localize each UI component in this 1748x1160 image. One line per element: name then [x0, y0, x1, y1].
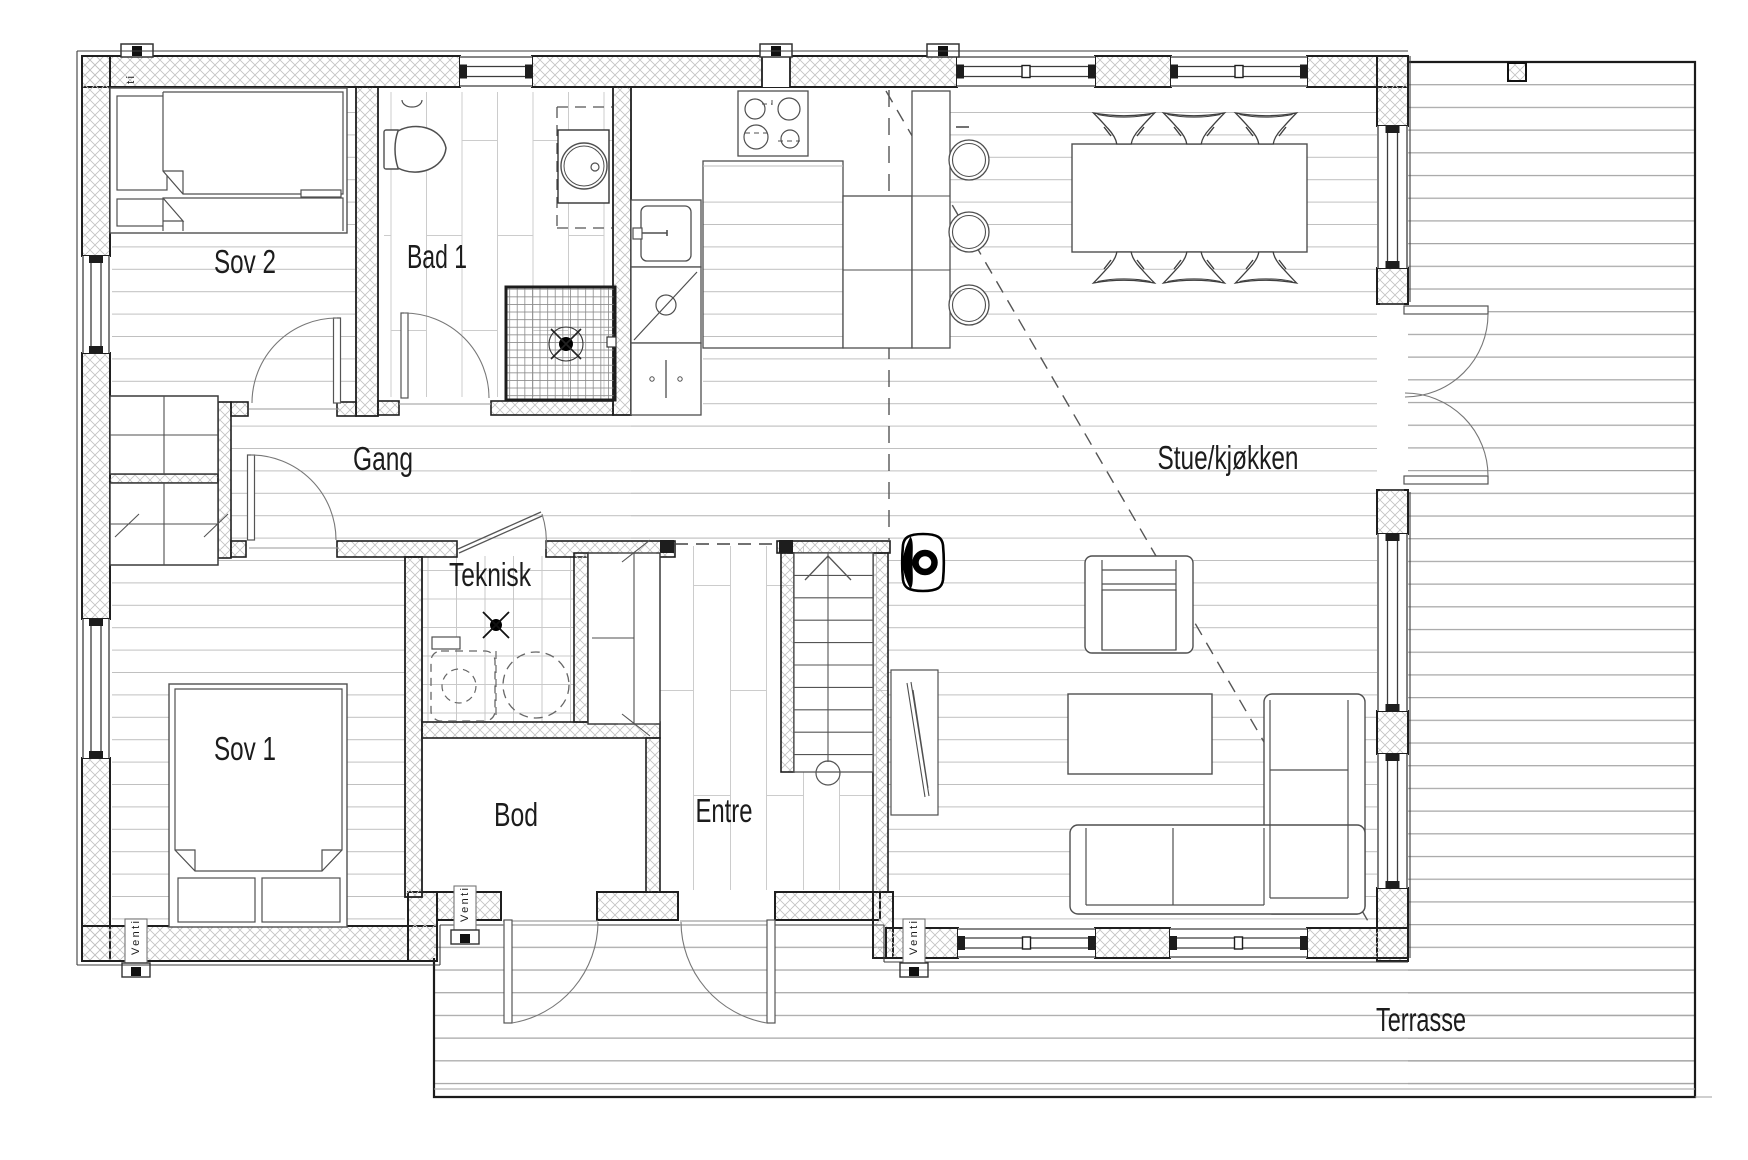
svg-text:Gang: Gang	[353, 440, 413, 477]
svg-text:Bad 1: Bad 1	[407, 238, 467, 275]
svg-text:Sov 1: Sov 1	[214, 730, 276, 767]
svg-text:Venti: Venti	[130, 921, 142, 955]
svg-text:Bod: Bod	[494, 796, 538, 833]
svg-text:Teknisk: Teknisk	[449, 556, 531, 593]
svg-text:Entre: Entre	[696, 792, 753, 829]
svg-text:Terrasse: Terrasse	[1376, 1001, 1466, 1038]
svg-text:Sov 2: Sov 2	[214, 243, 276, 280]
svg-text:Venti: Venti	[459, 888, 471, 922]
svg-text:Venti: Venti	[908, 921, 920, 955]
svg-text:Stue/kjøkken: Stue/kjøkken	[1158, 439, 1299, 476]
